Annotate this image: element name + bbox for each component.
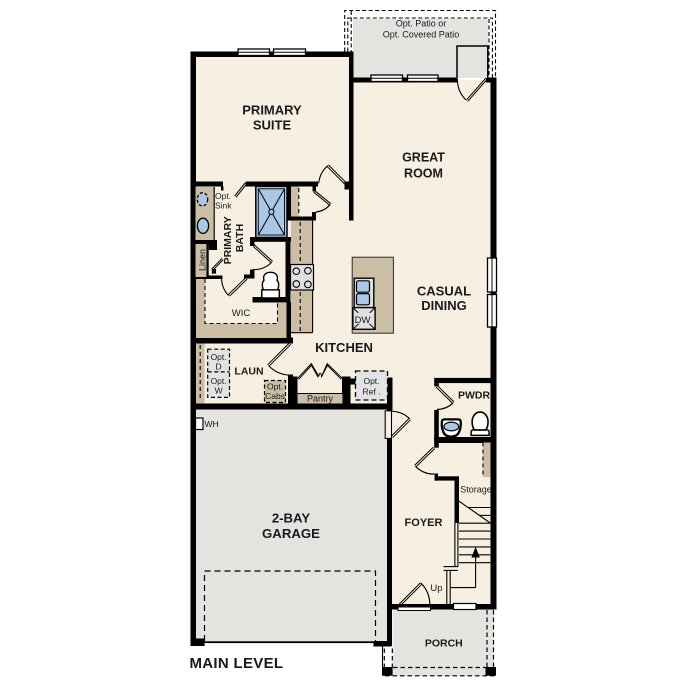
svg-text:MAIN LEVEL: MAIN LEVEL [190,655,284,672]
svg-text:Opt.: Opt. [267,382,283,392]
svg-text:2-BAY: 2-BAY [272,510,311,525]
svg-text:PWDR: PWDR [458,390,490,402]
svg-text:PORCH: PORCH [425,638,463,650]
svg-text:BATH: BATH [234,224,246,252]
svg-text:KITCHEN: KITCHEN [315,340,373,355]
svg-text:CASUAL: CASUAL [417,284,471,299]
svg-text:Up: Up [430,583,442,594]
svg-text:WH: WH [205,419,219,429]
svg-text:LAUN: LAUN [234,366,263,378]
svg-text:Opt.: Opt. [211,376,227,386]
svg-text:Opt. Covered Patio: Opt. Covered Patio [383,30,460,40]
svg-text:FOYER: FOYER [405,517,443,529]
svg-text:SUITE: SUITE [253,118,292,133]
svg-text:Storage: Storage [460,485,492,495]
svg-text:DW: DW [355,315,371,326]
svg-text:Opt. Patio or: Opt. Patio or [396,19,447,29]
svg-text:Opt.: Opt. [211,352,227,362]
svg-text:Sink: Sink [215,201,232,211]
svg-text:Ref .: Ref . [363,387,381,397]
svg-text:GARAGE: GARAGE [262,526,320,541]
svg-text:Opt.: Opt. [215,191,231,201]
svg-text:W: W [215,386,223,396]
svg-text:Pantry: Pantry [307,394,334,404]
svg-text:PRIMARY: PRIMARY [222,216,234,264]
svg-text:DINING: DINING [421,298,467,313]
svg-text:Opt.: Opt. [363,376,379,386]
svg-text:Cabs: Cabs [265,391,285,401]
svg-text:D: D [216,362,222,372]
svg-text:PRIMARY: PRIMARY [242,103,302,118]
svg-text:ROOM: ROOM [404,167,443,181]
svg-text:WIC: WIC [232,308,251,319]
svg-text:GREAT: GREAT [402,151,445,165]
svg-text:Linen: Linen [198,249,208,271]
